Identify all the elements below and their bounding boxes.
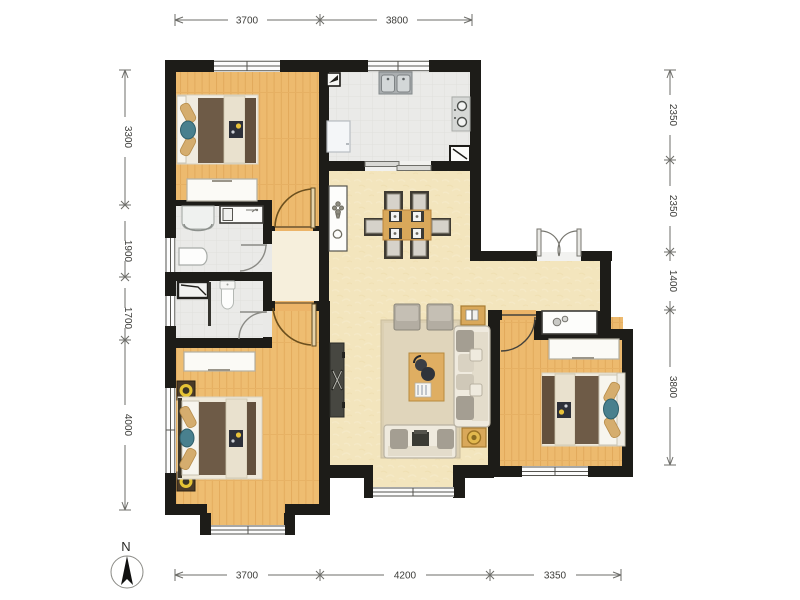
svg-text:N: N bbox=[121, 539, 130, 554]
svg-text:3800: 3800 bbox=[386, 16, 409, 27]
svg-text:1400: 1400 bbox=[667, 270, 678, 293]
svg-text:2350: 2350 bbox=[667, 195, 678, 218]
svg-text:3700: 3700 bbox=[236, 16, 259, 27]
svg-text:3700: 3700 bbox=[236, 571, 259, 582]
svg-text:2350: 2350 bbox=[667, 104, 678, 127]
svg-text:3300: 3300 bbox=[122, 126, 133, 149]
svg-text:4000: 4000 bbox=[122, 414, 133, 437]
svg-text:4200: 4200 bbox=[394, 571, 417, 582]
svg-text:1700: 1700 bbox=[122, 307, 133, 330]
svg-text:1900: 1900 bbox=[122, 240, 133, 263]
svg-text:3800: 3800 bbox=[667, 376, 678, 399]
svg-text:3350: 3350 bbox=[544, 571, 567, 582]
